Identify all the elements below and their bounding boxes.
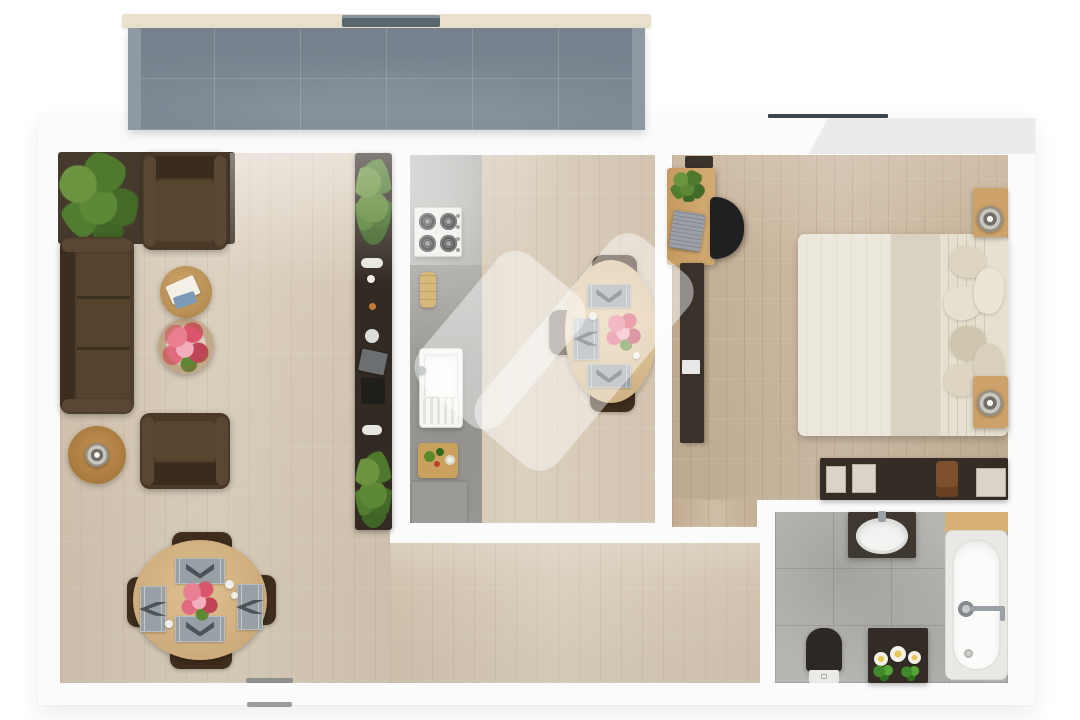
counter-plant — [355, 448, 392, 528]
burner — [419, 213, 436, 230]
armchair-seat — [154, 421, 216, 461]
orange-cup — [369, 303, 376, 310]
basin-tap — [878, 511, 886, 522]
armchair-arm — [142, 417, 154, 485]
laptop — [358, 349, 388, 376]
cup — [231, 592, 238, 599]
bread-board — [420, 272, 436, 308]
bathroom — [775, 512, 1008, 683]
duvet-folds — [806, 234, 886, 436]
sofa-backrest — [60, 241, 75, 410]
flower-greens — [900, 665, 922, 682]
bedroom-window — [768, 114, 888, 118]
toilet-cistern — [809, 670, 839, 683]
sideboard — [820, 458, 1008, 500]
window-light-shade — [768, 118, 1035, 154]
armchair-top — [142, 152, 228, 250]
burner — [440, 213, 457, 230]
burner — [440, 235, 457, 252]
entrance-door-mark — [247, 702, 292, 707]
burner — [419, 235, 436, 252]
armchair-arm — [214, 156, 226, 246]
daisy-flower — [890, 646, 906, 662]
bar-counter — [355, 153, 392, 530]
tub-handle-end — [1000, 606, 1005, 621]
balcony-tiled-floor — [128, 28, 645, 130]
table-lamp — [85, 443, 109, 467]
balcony-railing-gate — [342, 15, 440, 27]
office-chair — [710, 197, 744, 259]
bathroom-vanity — [848, 512, 916, 558]
cup — [225, 580, 234, 589]
leather-bag — [936, 461, 958, 497]
living-dining-room — [60, 153, 390, 683]
side-table-books — [160, 266, 212, 318]
bathtub — [945, 530, 1008, 680]
tub-drain — [964, 649, 973, 658]
kitchen-cabinet — [412, 480, 467, 523]
nightstand — [973, 188, 1008, 237]
tub-wood-shelf — [945, 512, 1008, 532]
armchair-backrest — [145, 463, 225, 485]
armchair-seat — [156, 180, 214, 242]
washbasin — [856, 518, 908, 554]
tray — [826, 466, 846, 493]
toilet — [806, 628, 842, 683]
floor-plan-render: 3D top-down floor plan rendering of a on… — [0, 0, 1080, 720]
armchair-arm — [144, 156, 156, 246]
bathroom-cabinet — [868, 628, 928, 683]
desk-plant — [670, 170, 706, 202]
nightstand — [973, 376, 1008, 428]
shelf-item — [682, 360, 700, 374]
counter-plant — [355, 155, 392, 245]
tray — [361, 378, 385, 404]
bowl — [365, 329, 379, 343]
hallway-floor — [390, 543, 760, 683]
cup — [165, 620, 173, 628]
serving-board — [418, 443, 458, 478]
dining-table — [133, 540, 267, 660]
gas-hob — [414, 207, 462, 257]
sofa — [60, 237, 134, 414]
balcony — [128, 14, 645, 130]
bedside-lamp — [977, 390, 1003, 416]
sofa-cushions — [77, 253, 130, 398]
toilet-lid — [806, 628, 842, 672]
bedroom-door-nook — [672, 500, 757, 527]
hall-floor-shading — [390, 543, 760, 683]
placemat — [140, 586, 166, 632]
laptop — [668, 210, 706, 253]
placemat — [237, 584, 263, 630]
flush-button — [821, 674, 827, 679]
armchair-backrest — [147, 156, 223, 178]
pillow — [972, 267, 1005, 315]
vegetable — [434, 461, 440, 467]
cup — [367, 275, 375, 283]
tub-handle — [970, 606, 1004, 611]
sofa-arm — [62, 399, 132, 412]
hob-knobs — [456, 214, 460, 252]
plate — [361, 258, 383, 268]
bedside-lamp — [977, 206, 1003, 232]
side-table-flowers — [158, 318, 214, 374]
entrance-threshold — [246, 678, 293, 683]
tray — [852, 464, 876, 493]
armchair-bottom — [140, 413, 230, 489]
vegetable — [436, 448, 444, 456]
small-bowl — [445, 455, 455, 465]
flower-centerpiece — [178, 578, 222, 622]
bedroom — [672, 155, 1008, 500]
tray — [976, 468, 1006, 497]
daisy-flower — [908, 651, 921, 664]
flower-greens — [872, 664, 896, 682]
sofa-arm — [62, 239, 132, 252]
drum-side-table — [68, 426, 126, 484]
armchair-arm — [216, 417, 228, 485]
wall-shelf — [685, 156, 713, 168]
vegetable — [424, 451, 435, 462]
plate — [362, 425, 382, 435]
